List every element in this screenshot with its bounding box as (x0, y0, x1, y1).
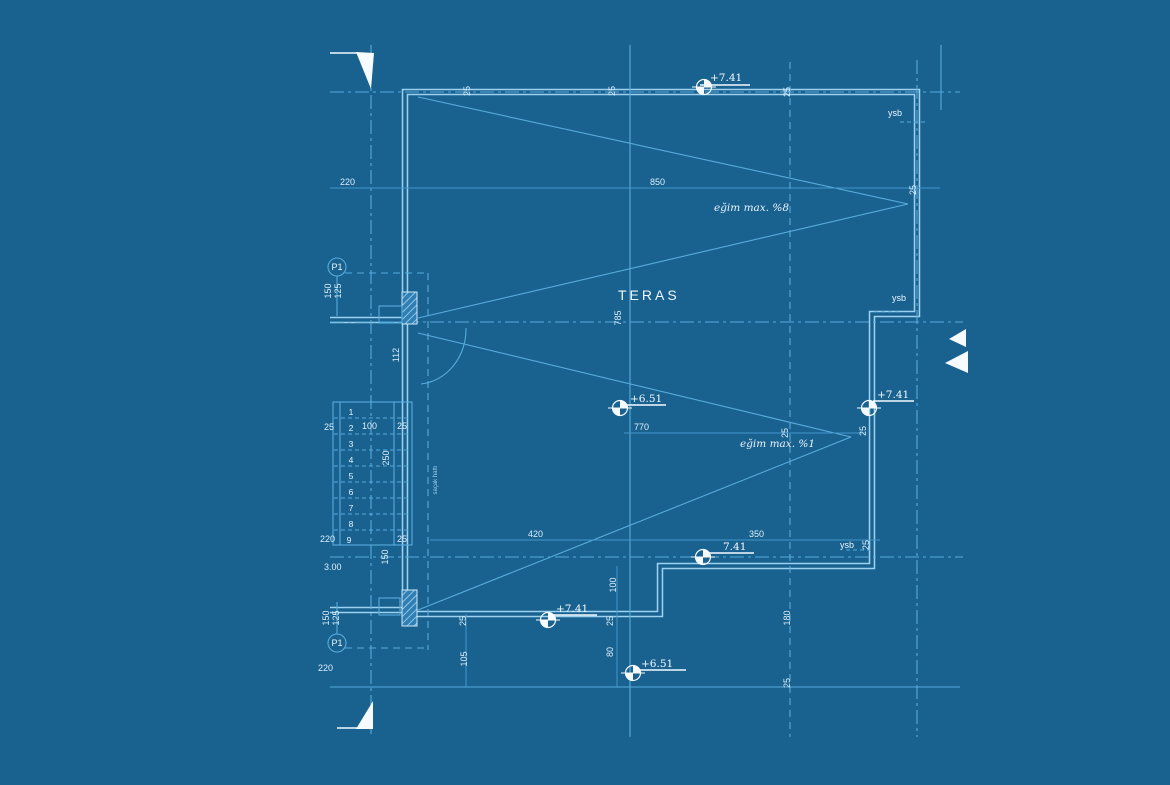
dim-25-stairs-left: 25 (324, 422, 334, 432)
slope-note-top: eğim max. %8 (714, 201, 789, 214)
dim-150-p1-bottom: 150 (321, 610, 331, 625)
dim-25-bottom-right: 25 (782, 678, 792, 688)
dim-25-grid: 25 (780, 428, 790, 438)
p1-label-bottom: P1 (331, 638, 342, 648)
dim-125-p1-top: 125 (333, 283, 343, 298)
room-label-teras: TERAS (618, 287, 680, 303)
level-markers (536, 80, 914, 681)
dim-25-topwall-b: 25 (607, 86, 617, 96)
p1-label-top: P1 (331, 262, 342, 272)
dim-850: 850 (650, 177, 665, 187)
section-arrow-right-upper (949, 329, 966, 347)
dim-25-bottom-b: 25 (605, 616, 615, 626)
stair-number: 6 (349, 487, 354, 497)
grid-lines (330, 45, 963, 737)
dim-25-topwall-c: 25 (782, 87, 792, 97)
level-bottom-651: +6.51 (641, 658, 673, 670)
dim-220-top: 220 (340, 177, 355, 187)
dim-25-ysb: 25 (861, 540, 871, 550)
dim-25-apex: 25 (858, 426, 868, 436)
dim-80: 80 (605, 647, 615, 657)
ysb-label-bottom: ysb (840, 540, 854, 550)
section-arrow-right-lower (945, 351, 968, 373)
slope-note-bottom: eğim max. %1 (740, 437, 815, 450)
dim-250-stairs: 250 (381, 450, 391, 465)
dim-125-p1-bottom: 125 (331, 610, 341, 625)
level-top: +7.41 (710, 72, 742, 84)
eave-note: saçak hattı (433, 465, 439, 494)
corner-marker-bottom-left (356, 701, 373, 729)
blueprint-drawing: TERAS eğim max. %8 eğim max. %1 ysb ysb … (0, 0, 1170, 785)
ysb-label-top: ysb (888, 108, 902, 118)
blueprint-canvas: TERAS eğim max. %8 eğim max. %1 ysb ysb … (0, 0, 1170, 785)
building-outline-walls (330, 92, 917, 614)
ysb-label-mid: ysb (892, 293, 906, 303)
dim-25-stairs-bottom: 25 (397, 534, 407, 544)
dim-150-stairs: 150 (380, 549, 390, 564)
dim-220-left: 220 (320, 534, 335, 544)
dim-100-stairs: 100 (362, 421, 377, 431)
level-right-741: +7.41 (877, 389, 909, 401)
roof-slope-lines (418, 97, 908, 610)
stair-number: 4 (349, 455, 354, 465)
dim-150-p1-top: 150 (323, 283, 333, 298)
dim-100-step: 100 (608, 577, 618, 592)
dim-770: 770 (634, 422, 649, 432)
stair-number: 8 (349, 519, 354, 529)
dim-350: 350 (749, 529, 764, 539)
dim-25-bottom-a: 25 (458, 616, 468, 626)
dim-180: 180 (782, 610, 792, 625)
dim-25-stairs-top: 25 (397, 421, 407, 431)
dim-112: 112 (391, 348, 401, 362)
dim-220-bottom: 220 (318, 663, 333, 673)
stair-number: 5 (349, 471, 354, 481)
level-mid-651: +6.51 (630, 393, 662, 405)
dim-25-topwall-a: 25 (462, 86, 472, 96)
level-bottom-741: +7.41 (556, 603, 588, 615)
stair-numbers: 1 2 3 4 5 6 7 8 9 (347, 407, 354, 545)
dim-420: 420 (528, 529, 543, 539)
corner-marker-top-left (356, 52, 374, 89)
dim-785: 785 (613, 310, 623, 325)
dim-105: 105 (459, 651, 469, 666)
stair-number: 2 (349, 423, 354, 433)
stair-number: 9 (347, 535, 352, 545)
dim-25-rightwall: 25 (908, 185, 918, 195)
stair-number: 1 (349, 407, 354, 417)
level-step-741: 7.41 (723, 541, 746, 553)
dim-300-left: 3.00 (324, 562, 342, 572)
stair-number: 7 (349, 503, 354, 513)
stair-number: 3 (349, 439, 354, 449)
